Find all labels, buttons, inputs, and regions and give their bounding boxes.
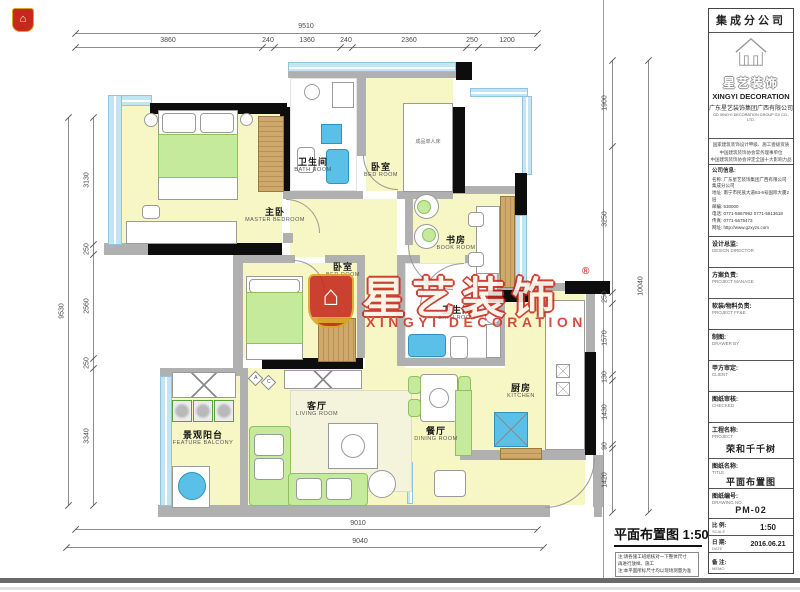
- dim-line: [68, 117, 69, 505]
- nightstand: [144, 113, 158, 127]
- wall-segment: [488, 290, 528, 302]
- dim-tick: [90, 502, 97, 509]
- field-drawing-title: 图纸名称:TITLE 平面布置图: [709, 459, 793, 489]
- field-drawing-number: 图纸编号:DRAWING NO. PM-02: [709, 489, 793, 519]
- bed-blanket: [246, 292, 303, 344]
- dim-tick: [645, 509, 652, 516]
- planter: [172, 400, 192, 422]
- company-info-label: 公司信息:: [712, 167, 790, 176]
- dim-tick: [540, 544, 547, 551]
- field-drawer: 制图:DRAWER BY: [709, 330, 793, 361]
- stove-burner: [556, 364, 570, 378]
- field-project-manager: 方案负责:PROJECT MANAGE: [709, 268, 793, 299]
- bookshelf: [500, 196, 515, 288]
- field-project-name: 工程名称:PROJECT 荣和千千树: [709, 423, 793, 459]
- dim-top-total: 9510: [298, 23, 314, 30]
- wall-partition: [158, 505, 550, 517]
- floor-drain: [304, 84, 320, 100]
- wall-segment: [148, 243, 282, 255]
- sheet-bottom-border: [0, 578, 800, 583]
- drawing-number-value: PM-02: [712, 505, 790, 515]
- wall-partition: [233, 255, 295, 263]
- company-logo-block: 星艺装饰 XINGYI DECORATION 广东星艺装饰集团广西有限公司 GD…: [709, 33, 793, 139]
- refrigerator: [494, 412, 528, 447]
- balcony-cabinet: [172, 372, 236, 398]
- tv-cabinet: [284, 370, 362, 389]
- sink-pedestal: [486, 324, 501, 358]
- wall-partition: [357, 78, 366, 156]
- dim-bottom-inner: 9010: [350, 520, 366, 527]
- dim-top-seg: 240: [262, 37, 274, 44]
- door-arc: [545, 458, 595, 508]
- dim-tick: [65, 502, 72, 509]
- title-block: 集成分公司 星艺装饰 XINGYI DECORATION 广东星艺装饰集团广西有…: [708, 8, 794, 574]
- pillow: [249, 279, 300, 293]
- room-label-bathroom-1: 卫生间BATH ROOM: [292, 157, 334, 174]
- room-label-dining-room: 餐厅DINING ROOM: [408, 426, 464, 443]
- note-line: 注:请各施工班组核对一下整体尺寸: [618, 554, 696, 561]
- wall-partition: [397, 263, 405, 366]
- wall-segment: [456, 62, 472, 80]
- room-label-living-room: 客厅LIVING ROOM: [286, 401, 348, 418]
- armchair: [434, 470, 466, 497]
- dim-right-total: 10040: [638, 276, 645, 295]
- sheet-title: 平面布置图 1:50: [614, 524, 702, 547]
- bathtub: [408, 334, 446, 357]
- dim-top-seg: 1200: [499, 37, 515, 44]
- brand-name-en: XINGYI DECORATION: [709, 92, 793, 101]
- wardrobe: [258, 116, 284, 192]
- bed-annotation: 成品单人床: [406, 138, 450, 145]
- info-row: 地址: 南宁市民族大道63-6号国际大厦2层: [712, 190, 790, 204]
- project-name-value: 荣和千千树: [712, 442, 790, 455]
- notes-box: 注:请各施工班组核对一下整体尺寸 再进行放样、施工 注:本平面所标尺寸均以现场测…: [615, 552, 699, 577]
- field-design-director: 设计总监:DESIGN DIRECTOR: [709, 237, 793, 268]
- room-label-bathroom-2: 卫生间BATH ROOM: [433, 305, 481, 322]
- window: [288, 62, 456, 72]
- dim-tick: [534, 44, 541, 51]
- wall-partition: [288, 72, 456, 78]
- wall-partition: [405, 199, 413, 245]
- dim-top-seg: 250: [466, 37, 478, 44]
- dim-left-seg: 3130: [84, 172, 91, 188]
- sheet-bottom-shadow: [0, 587, 800, 590]
- dim-top-seg: 2360: [401, 37, 417, 44]
- sheet-title-text: 平面布置图: [614, 527, 679, 542]
- bed-single: [403, 103, 453, 192]
- shower-tray: [332, 82, 354, 108]
- cert-line: 国家建筑装饰设计甲级、施工壹级资质: [709, 141, 793, 149]
- shoe-cabinet: [500, 448, 542, 460]
- sink: [321, 124, 342, 144]
- wall-segment: [453, 107, 465, 193]
- sheet-title-scale: 1:50: [683, 527, 709, 542]
- dim-tick: [534, 30, 541, 37]
- info-row: 网址: http://www.gzxyzs.com: [712, 225, 790, 232]
- room-label-book-room: 书房BOOK ROOM: [430, 235, 482, 252]
- branch-name: 集成分公司: [709, 9, 793, 33]
- coffee-table-decor: [341, 434, 365, 458]
- decor-cabinet: [455, 390, 472, 456]
- company-name-en: GD XINGYI DECORATION GROUP GX CO., LTD.: [711, 112, 791, 122]
- dim-top-seg: 1360: [299, 37, 315, 44]
- sofa-cushion: [326, 478, 352, 500]
- dim-tick: [534, 526, 541, 533]
- wall-partition: [283, 233, 293, 243]
- dim-line: [66, 547, 543, 548]
- dining-chair: [408, 376, 421, 394]
- xingyi-house-logo: [732, 37, 770, 69]
- dim-left-seg: 2560: [84, 298, 91, 314]
- certifications: 国家建筑装饰设计甲级、施工壹级资质 中国建筑装饰协会常务理事单位 中国建筑装饰协…: [709, 139, 793, 165]
- scale-value: 1:50: [746, 523, 790, 532]
- dim-right-seg: 3250: [602, 211, 609, 227]
- sofa-cushion: [254, 458, 284, 480]
- dim-line: [75, 47, 537, 48]
- drawing-title-value: 平面布置图: [712, 475, 790, 488]
- wall-partition: [233, 255, 243, 368]
- sofa-cushion: [254, 434, 284, 456]
- washing-machine-drum: [178, 472, 206, 500]
- dim-left-seg: 250: [84, 357, 91, 369]
- window: [522, 96, 532, 175]
- side-table: [368, 470, 396, 498]
- dim-right-seg: 1430: [602, 404, 609, 420]
- field-checked: 图纸审核:CHECKED: [709, 392, 793, 423]
- window: [515, 215, 527, 291]
- dim-left-total: 9530: [59, 303, 66, 319]
- room-label-balcony: 景观阳台FEATURE BALCONY: [168, 430, 238, 447]
- dim-right-seg: 250: [602, 291, 609, 303]
- wall-partition: [586, 294, 595, 354]
- registered-mark: ®: [582, 266, 589, 277]
- desk-chair: [468, 212, 484, 227]
- wardrobe: [318, 318, 356, 362]
- note-line: 注:本平面所标尺寸均以现场测量为准: [618, 568, 696, 575]
- dim-line: [75, 33, 537, 34]
- field-client: 甲方审定:CLIENT: [709, 361, 793, 392]
- cert-line: 中国建筑装饰协会常务理事单位: [709, 149, 793, 157]
- room-label-master-bedroom: 主卧MASTER BEDROOM: [240, 207, 310, 224]
- company-info: 公司信息: 名称: 广东星艺装饰集团广西有限公司 集成分公司 地址: 南宁市民族…: [709, 165, 793, 237]
- floorplan-sheet: ⌂: [0, 0, 800, 592]
- desk-chair: [468, 252, 484, 267]
- dining-chair: [408, 399, 421, 417]
- toilet: [450, 336, 468, 359]
- planter: [214, 400, 234, 422]
- planter: [193, 400, 213, 422]
- wall-segment: [585, 352, 596, 455]
- ac-tag-label: C: [264, 378, 273, 386]
- dim-line: [648, 60, 649, 512]
- table-centerpiece: [429, 388, 449, 408]
- house-icon: ⌂: [20, 13, 27, 25]
- plant-leaf: [417, 200, 431, 214]
- ac-tag-label: A: [251, 374, 260, 382]
- wall-partition: [397, 358, 505, 366]
- window: [470, 88, 528, 97]
- wall-partition: [240, 368, 248, 517]
- dim-tick: [609, 509, 616, 516]
- sink: [485, 308, 501, 324]
- field-scale: 比 例:SCALE 1:50: [709, 519, 793, 536]
- pillow: [200, 113, 234, 133]
- wall-segment: [515, 173, 527, 215]
- dim-bottom-outer: 9040: [352, 538, 368, 545]
- dresser: [126, 221, 237, 244]
- dim-right-seg: 1900: [602, 95, 609, 111]
- company-name-cn: 广东星艺装饰集团广西有限公司: [709, 103, 793, 112]
- cert-line: 中国建筑装饰协会评定全国十大影响力品牌: [709, 156, 793, 165]
- stove-burner: [556, 382, 570, 396]
- room-label-bedroom-2: 卧室BED ROOM: [320, 262, 366, 279]
- dim-top-seg: 3860: [160, 37, 176, 44]
- dim-left-seg: 250: [84, 243, 91, 255]
- room-label-kitchen: 厨房KITCHEN: [498, 383, 544, 400]
- dim-right-seg: 90: [602, 442, 609, 450]
- dim-right-seg: 1570: [602, 330, 609, 346]
- brand-name-cn: 星艺装饰: [709, 74, 793, 91]
- dim-left-seg: 3340: [84, 428, 91, 444]
- dim-top-seg: 240: [340, 37, 352, 44]
- field-ffe: 软装/物料负责:PROJECT FF&E: [709, 299, 793, 330]
- dim-line: [93, 117, 94, 505]
- field-date: 日 期:DATE 2016.06.21: [709, 536, 793, 553]
- sofa-cushion: [296, 478, 322, 500]
- bed-blanket: [158, 134, 238, 178]
- pillow: [162, 113, 196, 133]
- note-line: 再进行放样、施工: [618, 561, 696, 568]
- wall-partition: [283, 191, 363, 199]
- stool: [142, 205, 160, 219]
- nightstand: [240, 113, 253, 126]
- field-memo: 备 注:MEMO: [709, 553, 793, 575]
- dim-right-seg: 130: [602, 371, 609, 383]
- room-label-bedroom-1: 卧室BED ROOM: [360, 162, 402, 179]
- window: [108, 95, 122, 245]
- date-value: 2016.06.21: [746, 541, 790, 548]
- info-row: 名称: 广东星艺装饰集团广西有限公司 集成分公司: [712, 177, 790, 191]
- dim-right-seg: 1420: [602, 472, 609, 488]
- xingyi-shield-icon: ⌂: [12, 8, 34, 32]
- dim-line: [75, 529, 537, 530]
